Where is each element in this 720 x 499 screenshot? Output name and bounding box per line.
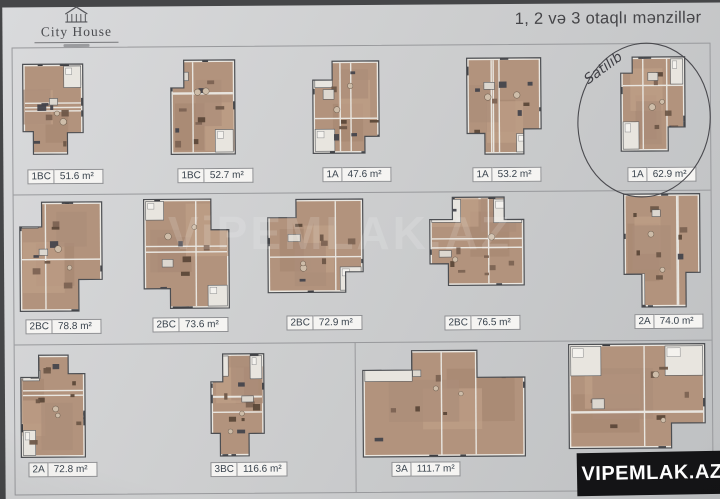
floor-plan-drawing: [169, 58, 238, 156]
floor-plan-drawing: [428, 195, 527, 288]
plan-label: 2A 72.8 m²: [28, 462, 97, 477]
plan-code: 2BC: [286, 315, 314, 330]
plan-label: 1BC 51.6 m²: [27, 169, 104, 185]
plan-cell: 2BC 72.9 m²: [266, 197, 366, 295]
plan-area: 72.9 m²: [314, 315, 363, 330]
floor-plan-drawing: [567, 342, 708, 451]
plan-area: 73.6 m²: [180, 317, 229, 332]
floor-plan-drawing: [619, 55, 688, 153]
row-divider: [14, 190, 711, 196]
plan-cell: 1BC 51.6 m²: [21, 62, 86, 156]
floor-plan-drawing: [465, 56, 544, 157]
floor-plan-drawing: [21, 62, 86, 156]
plan-label: 2BC 72.9 m²: [286, 315, 363, 331]
plan-area: 53.2 m²: [493, 167, 542, 182]
plan-area: 47.6 m²: [343, 167, 392, 182]
plan-cell: 1BC 52.7 m²: [169, 58, 238, 156]
plan-cell-sold: 1A 62.9 m²: [619, 55, 688, 153]
plan-code: 1A: [627, 167, 647, 182]
plan-code: 1BC: [177, 168, 205, 183]
plan-code: 1A: [322, 167, 342, 182]
plan-cell: 1A 47.6 m²: [311, 59, 382, 155]
plan-cell: 2A 74.0 m²: [622, 192, 703, 310]
floor-plan-drawing: [622, 192, 703, 310]
plan-code: 2BC: [25, 319, 53, 334]
photographed-poster: City House 1, 2 və 3 otaqlı mənzillər 1B…: [0, 0, 720, 499]
plan-label: 3A 111.7 m²: [391, 461, 460, 476]
plan-label: 1A 62.9 m²: [627, 167, 696, 182]
plan-label: 2BC 78.8 m²: [25, 319, 102, 335]
logo-wordmark: City House: [28, 24, 124, 41]
plan-code: 3A: [391, 462, 411, 477]
floor-plan-drawing: [311, 59, 382, 155]
floor-plan-drawing: [19, 353, 88, 459]
plan-label: 1BC 52.7 m²: [177, 168, 254, 184]
plan-cell: 2BC 73.6 m²: [142, 197, 232, 311]
plan-cell: 2BC 78.8 m²: [18, 200, 105, 314]
plan-cell: 3BC 116.6 m²: [209, 352, 267, 458]
plan-area: 76.5 m²: [472, 315, 521, 330]
plan-label: 1A 47.6 m²: [322, 167, 391, 182]
plan-label: 2A 74.0 m²: [634, 314, 703, 329]
plan-code: 1BC: [27, 169, 55, 184]
plan-label: 2BC 73.6 m²: [152, 317, 229, 333]
plan-code: 2A: [634, 314, 654, 329]
plan-area: 74.0 m²: [655, 314, 704, 329]
floor-plan-drawing: [18, 200, 105, 314]
plan-code: 2A: [28, 462, 48, 477]
plan-label: 3BC 116.6 m²: [210, 462, 287, 478]
floor-plan-drawing: [209, 352, 267, 458]
poster-title: 1, 2 və 3 otaqlı mənzillər: [515, 9, 702, 29]
house-icon: [63, 6, 89, 23]
plan-code: 3BC: [210, 462, 238, 477]
plan-cell: 2A 72.8 m²: [19, 353, 88, 459]
plan-cell: 1A 53.2 m²: [465, 56, 544, 157]
corner-watermark-bar: VIPEMLAK.AZ: [577, 451, 720, 497]
plan-code: 1A: [472, 167, 492, 182]
plan-area: 116.6 m²: [238, 462, 288, 477]
plan-area: 72.8 m²: [49, 462, 98, 477]
plan-cell: 3A 111.7 m²: [361, 348, 528, 459]
plan-area: 51.6 m²: [55, 169, 104, 184]
plan-label: 2BC 76.5 m²: [444, 315, 521, 331]
plan-cell: 3A 115.4 m²: [567, 342, 708, 451]
column-divider: [355, 342, 357, 492]
plan-cell: 2BC 76.5 m²: [428, 195, 527, 288]
city-house-logo: City House: [28, 6, 124, 48]
plan-code: 2BC: [444, 315, 472, 330]
plan-area: 62.9 m²: [648, 167, 697, 182]
floor-plan-drawing: [361, 348, 528, 459]
plan-area: 52.7 m²: [205, 168, 254, 183]
plan-label: 1A 53.2 m²: [472, 167, 541, 182]
corner-watermark-text: VIPEMLAK.AZ: [581, 461, 720, 486]
floor-plan-drawing: [142, 197, 232, 311]
paper-sheet: City House 1, 2 və 3 otaqlı mənzillər 1B…: [2, 2, 720, 499]
plan-code: 2BC: [152, 317, 180, 332]
plan-area: 78.8 m²: [53, 319, 102, 334]
plan-area: 111.7 m²: [412, 461, 461, 476]
floor-plan-drawing: [266, 197, 366, 295]
